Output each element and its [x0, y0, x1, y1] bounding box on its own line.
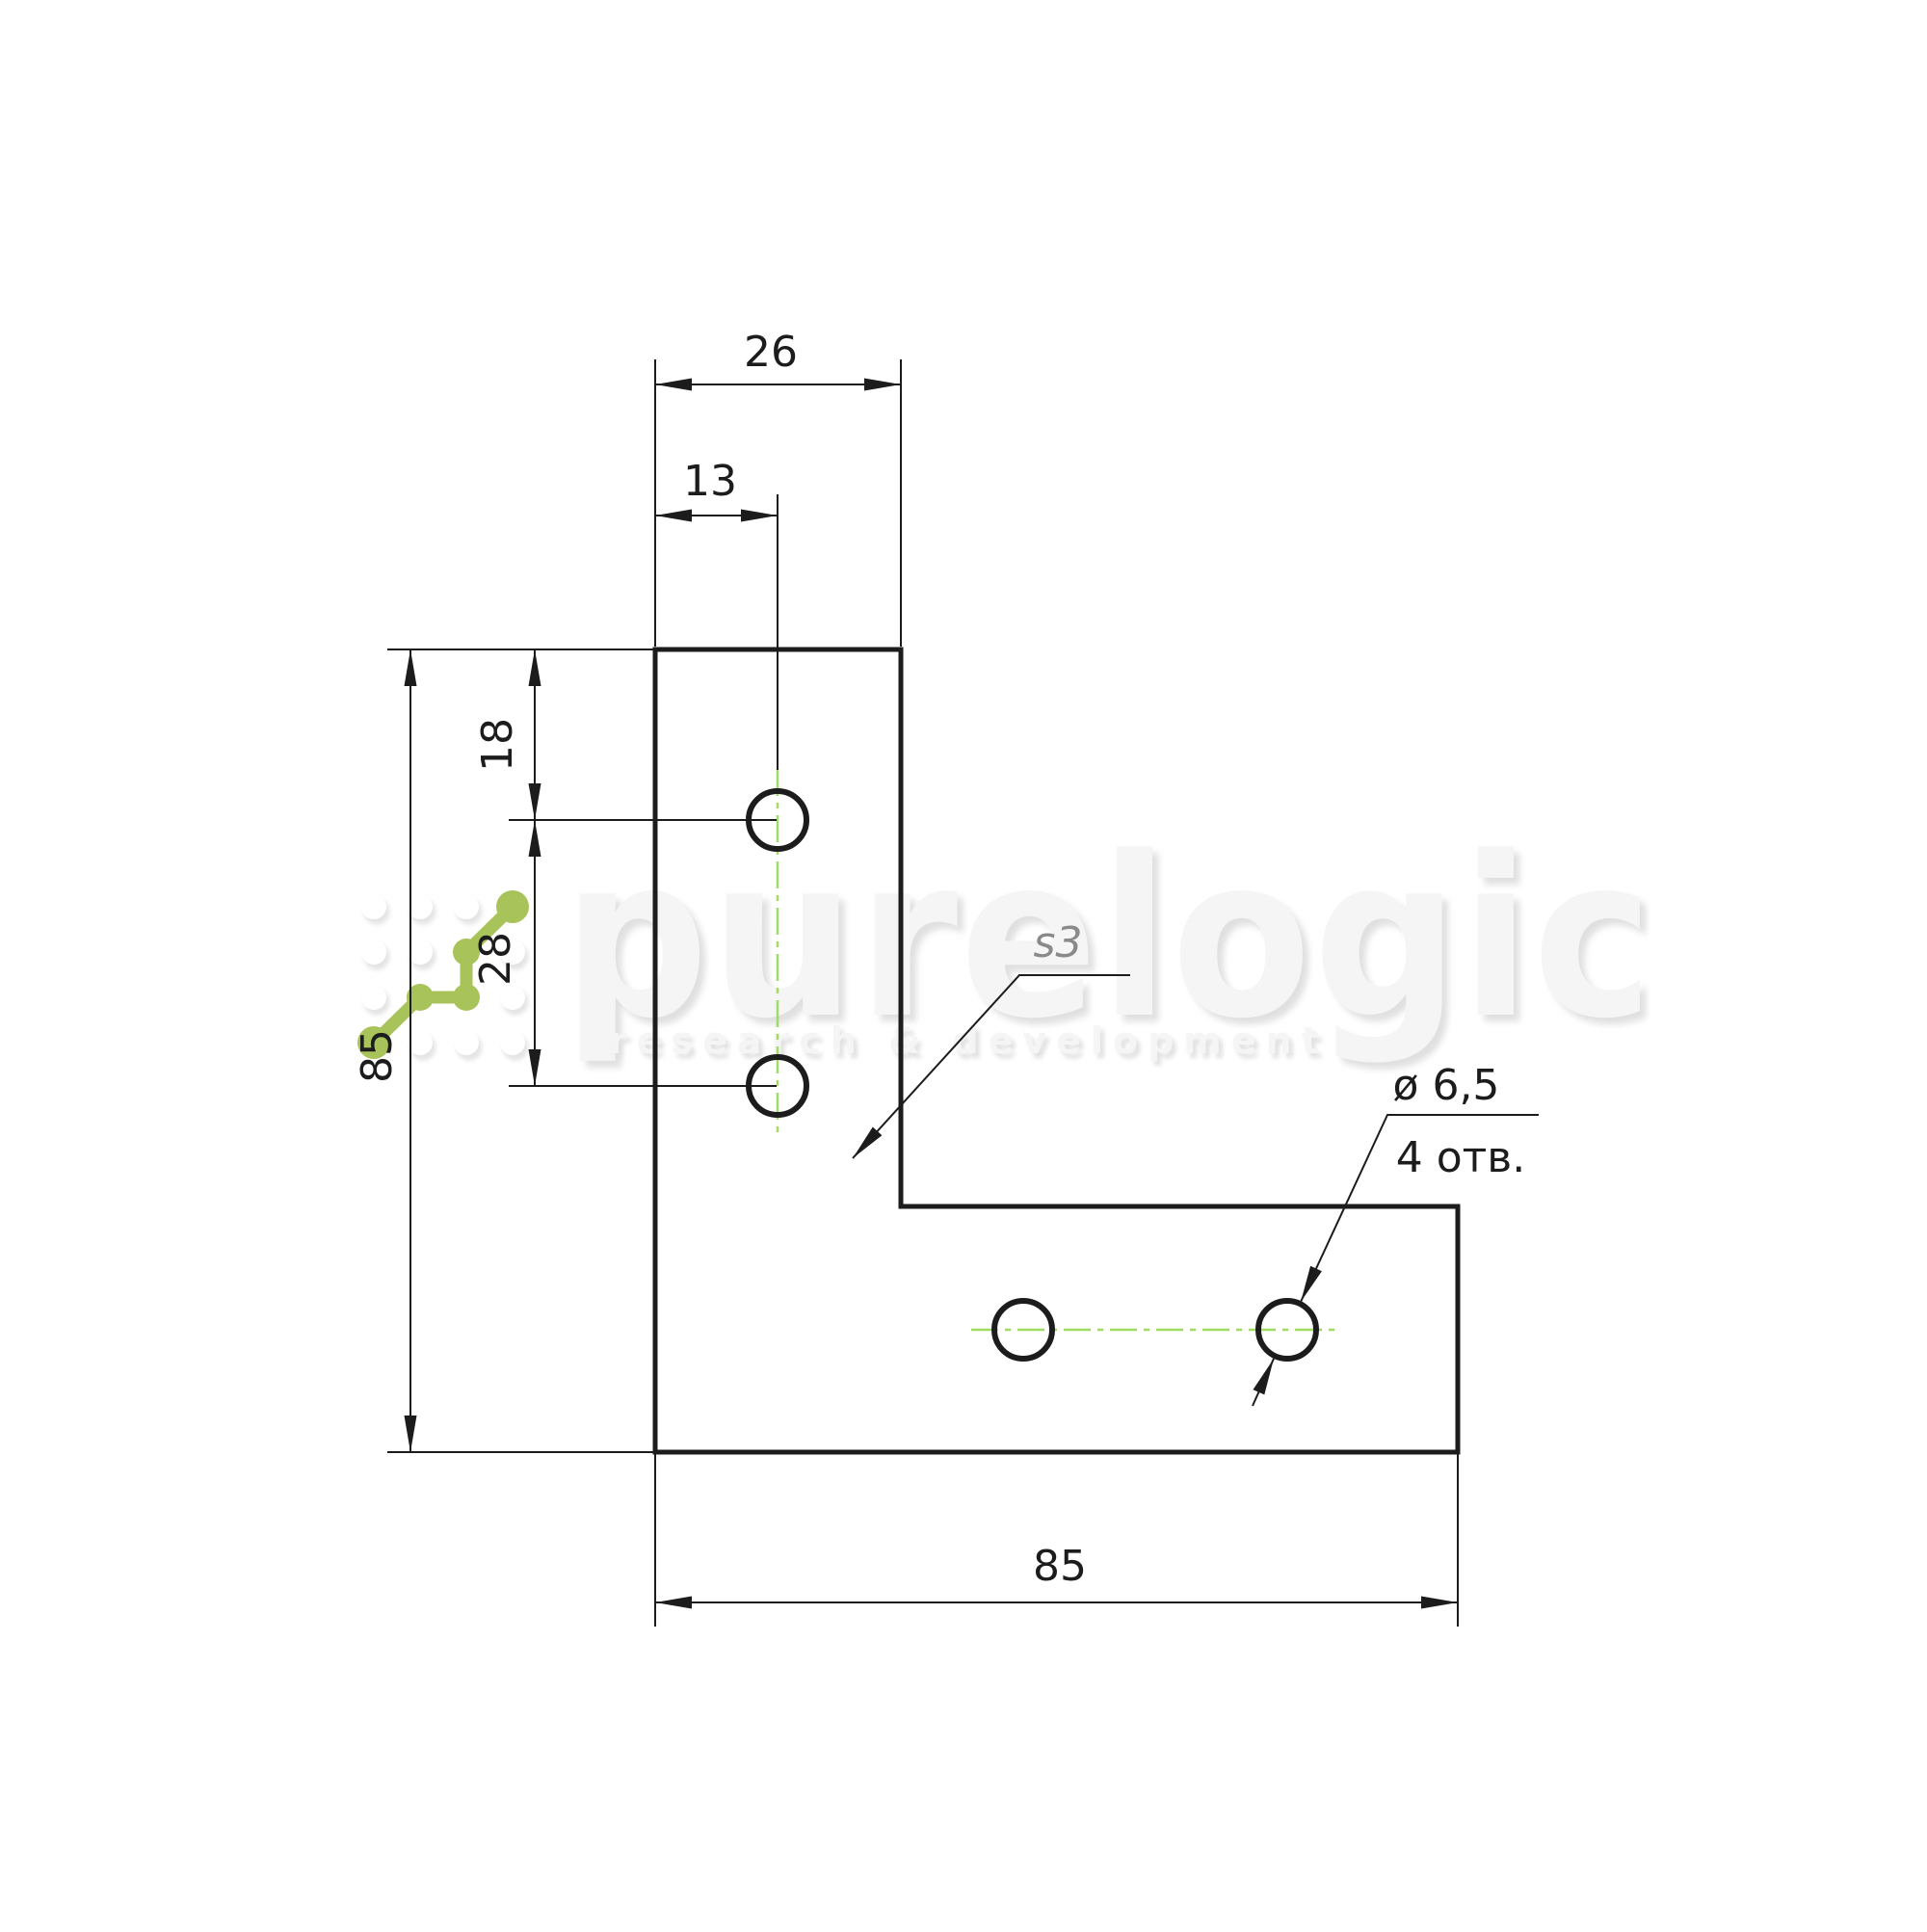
dimension-bottom-width: 85	[655, 1454, 1458, 1627]
leader-arrowhead-lower	[1254, 1359, 1275, 1394]
logo-node-dot	[453, 984, 480, 1011]
dim-value-13: 13	[683, 457, 737, 506]
arrowhead-left	[655, 379, 692, 391]
dim-value-28: 28	[471, 932, 520, 986]
arrowhead-top	[405, 649, 417, 686]
leader-arrowhead	[853, 1127, 882, 1159]
arrowhead-bottom	[529, 783, 541, 820]
thickness-label: s3	[1034, 918, 1083, 967]
watermark-subtitle-text: research & development	[609, 1019, 1329, 1062]
arrowhead-right	[864, 379, 901, 391]
arrowhead-bottom	[529, 1049, 541, 1086]
dimension-hole-offset: 13	[655, 457, 778, 770]
logo-node-dot	[496, 890, 529, 923]
arrowhead-left	[655, 510, 692, 522]
dim-value-85-bottom: 85	[1033, 1542, 1087, 1591]
watermark-subtitle: research & development research & develo…	[609, 1019, 1333, 1067]
dim-value-85-left: 85	[353, 1029, 402, 1083]
arrowhead-bottom	[405, 1416, 417, 1452]
dim-value-26: 26	[744, 328, 798, 377]
dim-value-18: 18	[473, 718, 522, 772]
arrowhead-left	[655, 1597, 692, 1609]
hole-spec-callout: ø 6,5 4 отв.	[1253, 1061, 1539, 1406]
leader-arrowhead-upper	[1301, 1266, 1322, 1302]
arrowhead-top	[529, 820, 541, 857]
technical-drawing: purelogic purelogic research & developme…	[0, 0, 1927, 1927]
drawing-canvas: purelogic purelogic research & developme…	[0, 0, 1927, 1927]
dimension-hole-top-offset: 18	[473, 649, 541, 820]
hole-diameter-label: ø 6,5	[1393, 1061, 1500, 1110]
watermark-layer: purelogic purelogic research & developme…	[357, 810, 1661, 1074]
arrowhead-right	[741, 510, 778, 522]
arrowhead-top	[529, 649, 541, 686]
arrowhead-right	[1421, 1597, 1458, 1609]
hole-count-label: 4 отв.	[1396, 1133, 1525, 1182]
